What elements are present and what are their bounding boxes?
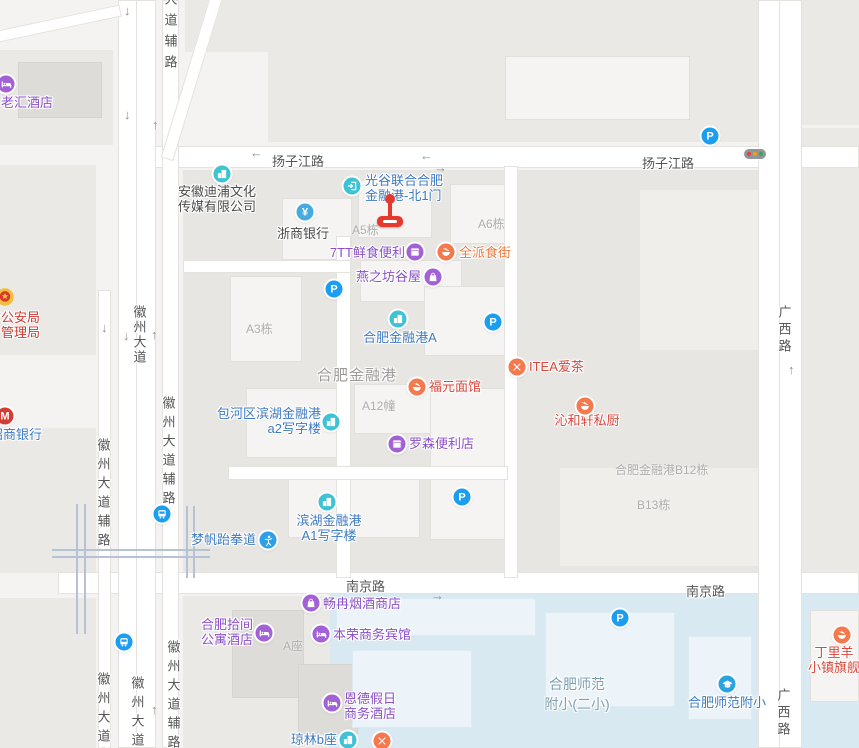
- road-direction-arrow: ↓: [124, 108, 131, 121]
- traffic-light-green: [759, 152, 764, 157]
- guanggu-north-gate-1-label[interactable]: 光谷联合合肥金融港-北1门: [365, 174, 443, 203]
- dingliyang-flagship-label[interactable]: 丁里羊小镇旗舰: [808, 646, 859, 675]
- qionglin-b-label[interactable]: 琼林b座: [291, 733, 337, 748]
- mengfan-taekwondo-label[interactable]: 梦帆跆拳道: [191, 533, 256, 548]
- road-label-广西路: 广西路: [775, 305, 794, 356]
- parking-yangzijiang-icon[interactable]: P: [702, 128, 719, 145]
- qionglin-b-icon[interactable]: [340, 732, 357, 748]
- road-label-徽州大道辅路: 徽州大道辅路: [94, 438, 113, 552]
- building-label-A12幢: A12幢: [362, 397, 395, 414]
- anhui-dipu-media-label[interactable]: 安徽迪浦文化传媒有限公司: [178, 185, 256, 214]
- road-direction-arrow: ↑: [151, 328, 158, 341]
- road-label-南京路: 南京路: [686, 581, 725, 600]
- police-bureau-line2-label[interactable]: 管理局: [1, 326, 40, 341]
- road-direction-arrow: ↑: [151, 703, 158, 716]
- quanpai-food-street-icon[interactable]: [438, 244, 455, 261]
- road-guangxi: [758, 0, 802, 748]
- bus-stop-1-icon[interactable]: [154, 506, 171, 523]
- elevated-line: [84, 504, 86, 634]
- road-median: [779, 0, 780, 748]
- parking-west-icon[interactable]: P: [326, 281, 343, 298]
- baohe-binhu-a2-office-label[interactable]: 包河区滨湖金融港a2写字楼: [217, 407, 321, 436]
- building-label-合肥金融港B12栋: 合肥金融港B12栋: [615, 461, 708, 478]
- traffic-light-yellow: [753, 152, 758, 157]
- building-b12: [640, 190, 758, 350]
- block: [800, 128, 859, 578]
- building-a6: [450, 184, 508, 244]
- police-bureau-line1-label[interactable]: 市公安局: [0, 311, 40, 326]
- block: [0, 598, 96, 748]
- baohe-binhu-a2-office-icon[interactable]: [323, 414, 340, 431]
- road-direction-arrow: ↓: [101, 321, 108, 334]
- 7tt-fresh-convenience-icon[interactable]: [407, 244, 424, 261]
- road-direction-arrow: ↑: [152, 118, 159, 131]
- building-label-A5栋: A5栋: [352, 221, 379, 238]
- block: [0, 428, 96, 573]
- binhu-a1-office-icon[interactable]: [319, 494, 336, 511]
- area-label-school-area: 合肥师范 附小(二小): [544, 674, 609, 714]
- dingliyang-flagship-icon[interactable]: [834, 627, 851, 644]
- road-direction-arrow: →: [431, 589, 444, 602]
- hefei-shifan-fuxiao-label[interactable]: 合肥师范附小: [688, 696, 766, 711]
- road-label-徽州大道: 徽州大道: [130, 305, 149, 365]
- road-direction-arrow: ↑: [788, 363, 795, 376]
- traffic-light-red: [747, 152, 752, 157]
- building: [430, 388, 506, 468]
- road-label-徽州大道: 徽州大道: [128, 676, 147, 748]
- 7tt-fresh-convenience-label[interactable]: 7TT鲜食便利: [330, 246, 405, 261]
- cmb-bank-icon[interactable]: M: [0, 408, 14, 425]
- qinhexuan-private-kitchen-label[interactable]: 沁和轩私厨: [554, 414, 619, 429]
- road-internal-h1: [183, 260, 351, 273]
- road-diagonal: [0, 5, 122, 44]
- yanzhifang-guwu-label[interactable]: 燕之坊谷屋: [356, 270, 421, 285]
- parking-south-icon[interactable]: P: [454, 489, 471, 506]
- changran-tobacco-shop-label[interactable]: 畅冉烟酒商店: [323, 597, 401, 612]
- guanggu-north-gate-1-icon[interactable]: [344, 178, 361, 195]
- map-canvas[interactable]: 扬子江路扬子江路南京路南京路大道辅路徽州大道徽州大道辅路徽州大道辅路徽州大道辅路…: [0, 0, 859, 748]
- parking-school-icon[interactable]: P: [612, 610, 629, 627]
- fuyuan-noodle-house-icon[interactable]: [409, 379, 426, 396]
- cmb-bank-label[interactable]: 招商银行: [0, 428, 42, 443]
- building-a3: [230, 276, 302, 362]
- qinhexuan-private-kitchen-icon[interactable]: [577, 398, 594, 415]
- police-bureau-line1-icon[interactable]: [0, 287, 15, 307]
- anhui-dipu-media-icon[interactable]: [214, 166, 231, 183]
- road-label-扬子江路: 扬子江路: [642, 153, 694, 172]
- elevated-line: [76, 504, 78, 634]
- road-direction-arrow: ←: [420, 149, 433, 162]
- hefei-shifan-fuxiao-icon[interactable]: [719, 676, 736, 693]
- road-direction-arrow: ←: [250, 146, 263, 159]
- lawson-convenience-icon[interactable]: [389, 436, 406, 453]
- benrong-business-hotel-icon[interactable]: [313, 626, 330, 643]
- building-b13: [560, 468, 758, 566]
- ende-holiday-hotel-icon[interactable]: [324, 695, 341, 712]
- benrong-business-hotel-label[interactable]: 本荣商务宾馆: [333, 628, 411, 643]
- quanpai-food-street-label[interactable]: 全派食街: [459, 246, 511, 261]
- building-label-A6栋: A6栋: [478, 215, 505, 232]
- hefei-financial-port-a-icon[interactable]: [390, 311, 407, 328]
- ende-holiday-hotel-label[interactable]: 恩德假日商务酒店: [344, 692, 396, 721]
- itea-aicha-icon[interactable]: [509, 359, 526, 376]
- parking-center-icon[interactable]: P: [485, 314, 502, 331]
- hefei-financial-port-a-label[interactable]: 合肥金融港A: [363, 331, 437, 346]
- elevated-line: [186, 506, 188, 578]
- road-direction-arrow: ↓: [124, 4, 131, 17]
- road-median: [136, 0, 137, 748]
- building-label-A3栋: A3栋: [246, 320, 273, 337]
- bus-stop-2-icon[interactable]: [116, 634, 133, 651]
- traffic-light-icon: [744, 149, 766, 159]
- binhu-a1-office-label[interactable]: 滨湖金融港A1写字楼: [296, 514, 361, 543]
- zheshang-bank-icon[interactable]: ¥: [297, 204, 314, 221]
- road-label-徽州大道辅路: 徽州大道辅路: [164, 640, 183, 748]
- laohui-hotel-label[interactable]: 老汇酒店: [1, 96, 53, 111]
- road-label-广西路: 广西路: [774, 688, 793, 739]
- zheshang-bank-label[interactable]: 浙商银行: [277, 227, 329, 242]
- road-label-扬子江路: 扬子江路: [272, 151, 324, 170]
- fuyuan-noodle-house-label[interactable]: 福元面馆: [429, 380, 481, 395]
- lawson-convenience-label[interactable]: 罗森便利店: [409, 437, 474, 452]
- building-label-B13栋: B13栋: [637, 496, 670, 513]
- hefei-shijian-apartment-hotel-label[interactable]: 合肥拾间公寓酒店: [201, 618, 253, 647]
- road-label-南京路: 南京路: [346, 576, 385, 595]
- changran-tobacco-shop-icon[interactable]: [303, 595, 320, 612]
- hefei-shijian-apartment-hotel-icon[interactable]: [256, 625, 273, 642]
- road-label-徽州大道辅路: 徽州大道辅路: [159, 396, 178, 510]
- area-label-financial-port: 合肥金融港: [317, 364, 397, 385]
- road-label-大道辅路: 大道辅路: [161, 0, 180, 76]
- mengfan-taekwondo-icon[interactable]: [260, 532, 277, 549]
- road-label-徽州大道辅路: 徽州大道辅路: [94, 672, 113, 748]
- road-internal-h2: [228, 466, 508, 480]
- restaurant-poi-icon[interactable]: [374, 733, 391, 748]
- building-label-A座: A座: [283, 637, 303, 654]
- building: [505, 56, 690, 120]
- itea-aicha-label[interactable]: ITEA爱茶: [529, 360, 584, 375]
- yanzhifang-guwu-icon[interactable]: [425, 269, 442, 286]
